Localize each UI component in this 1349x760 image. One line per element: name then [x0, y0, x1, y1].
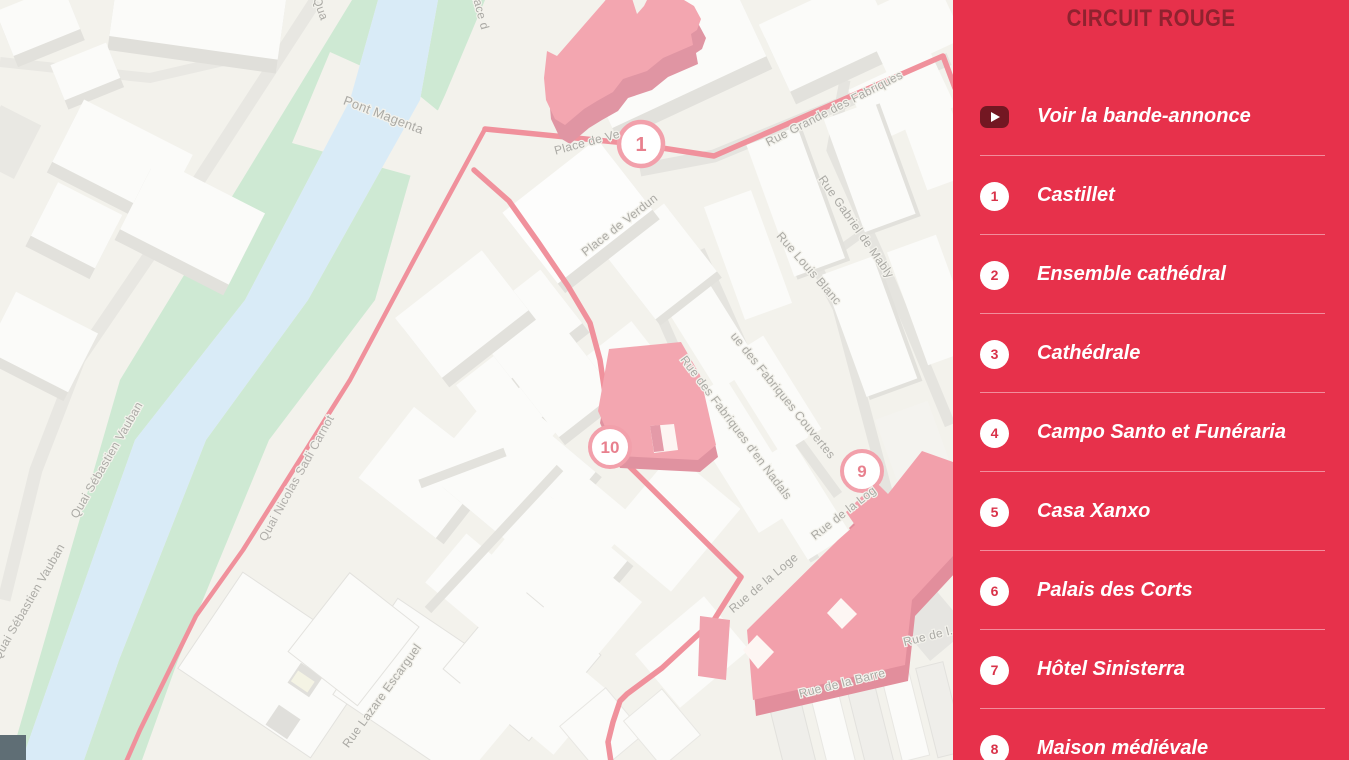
svg-text:1: 1 [635, 134, 646, 156]
svg-text:10: 10 [601, 438, 620, 457]
svg-text:9: 9 [857, 462, 866, 481]
